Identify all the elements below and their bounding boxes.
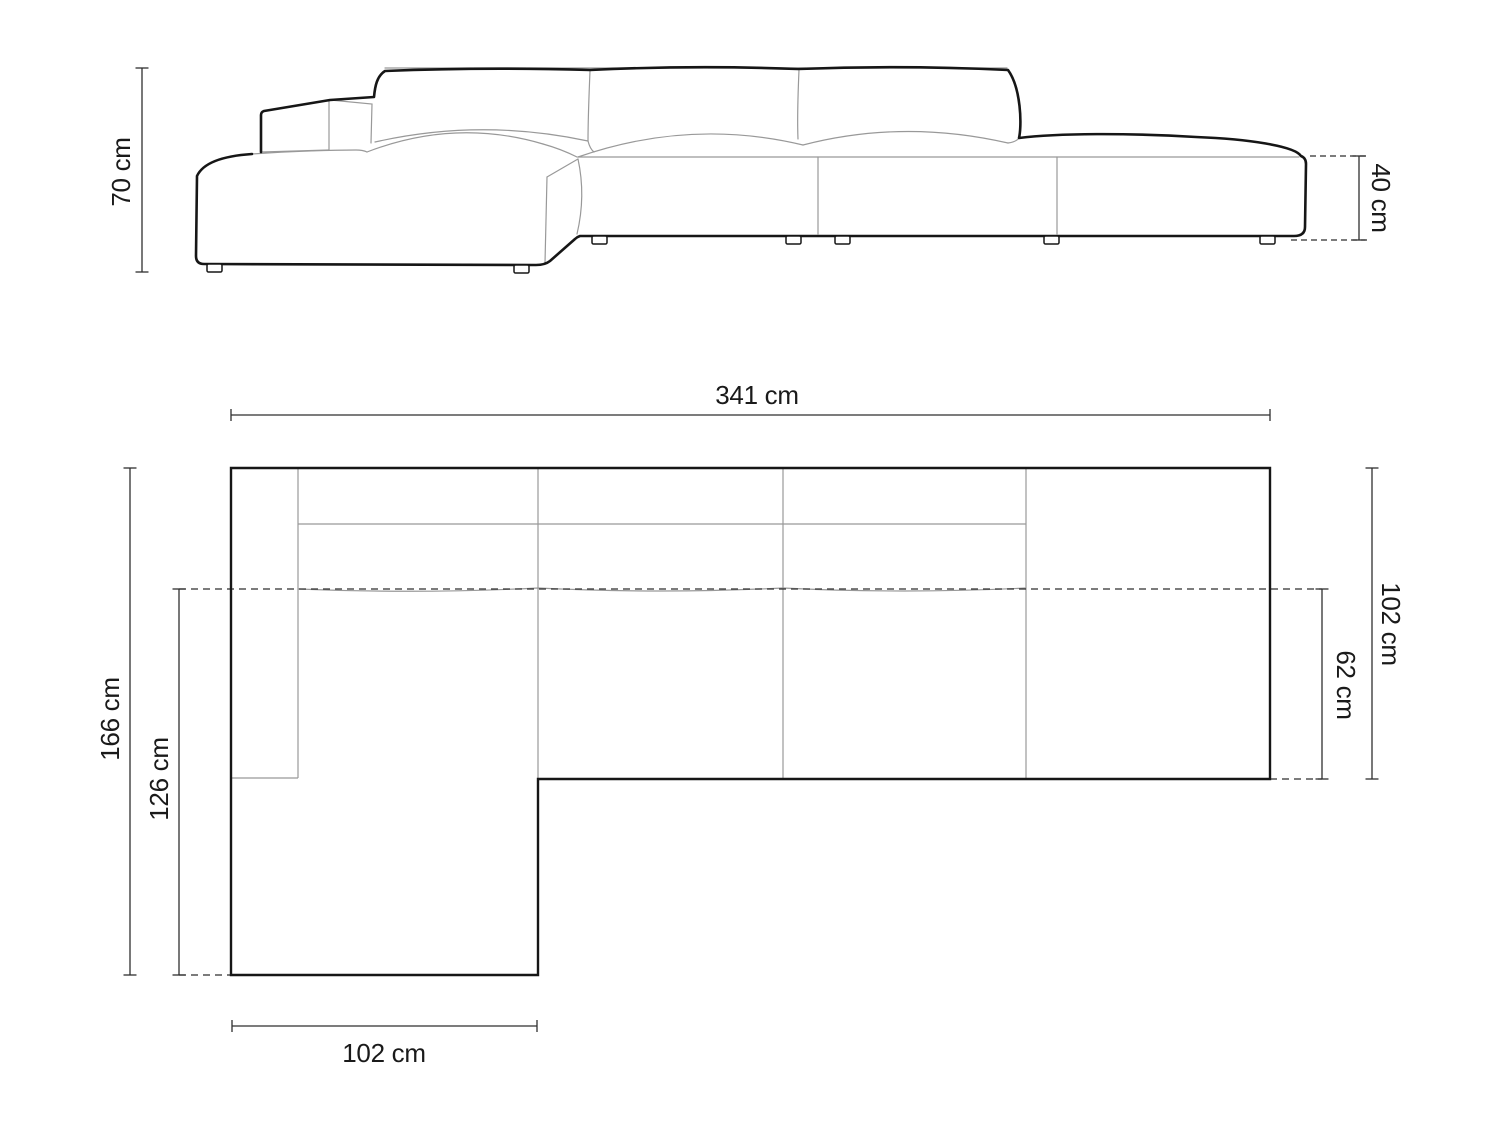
plan-sofa-outline: [231, 468, 1270, 975]
label-body-depth: 102 cm: [1376, 582, 1406, 665]
seat-back-arc-link: [588, 141, 594, 152]
front-interior-lines: [252, 68, 1299, 263]
label-seat-height: 40 cm: [1366, 163, 1396, 232]
top-plan-view: 341 cm 166 cm 126 cm 102 cm 102 cm: [95, 380, 1406, 1068]
backrest-boundary-1: [588, 71, 590, 141]
dimension-seat-depth: [1316, 589, 1329, 779]
leg: [835, 236, 850, 244]
front-elevation-view: 70 cm 40 cm: [106, 67, 1396, 273]
leg: [1044, 236, 1059, 244]
label-total-depth: 166 cm: [95, 677, 125, 760]
leg: [207, 264, 222, 272]
label-chaise-width: 102 cm: [342, 1038, 425, 1068]
dimension-total-height: [136, 68, 149, 272]
front-sofa-outline: [196, 67, 1306, 265]
label-total-width: 341 cm: [715, 380, 798, 410]
main-front-left-curve: [577, 159, 582, 234]
sofa-body-outline: [196, 67, 1306, 265]
dimension-total-width: [231, 409, 1270, 421]
dimension-chaise-width: [232, 1020, 537, 1032]
diagram-svg: 70 cm 40 cm: [0, 0, 1500, 1125]
backrest-boundary-2: [798, 70, 799, 139]
plan-interior-lines: [231, 468, 1026, 779]
chaise-cushion-link: [543, 144, 577, 157]
leg: [514, 265, 529, 273]
plan-outline-group: [231, 468, 1270, 975]
label-chaise-depth: 126 cm: [144, 737, 174, 820]
seat-cushion-arc-2: [578, 134, 803, 157]
chaise-cushion-arc: [367, 133, 543, 152]
dimension-seat-height: [1291, 156, 1368, 240]
leg: [592, 236, 607, 244]
leg: [786, 236, 801, 244]
sofa-dimensions-diagram: 70 cm 40 cm: [0, 0, 1500, 1125]
leg: [1260, 236, 1275, 244]
front-legs: [207, 236, 1275, 273]
armrest-box-inner-edges: [330, 100, 372, 143]
ottoman-cushion-link: [1008, 138, 1019, 143]
plan-dashed-lines: [179, 589, 1322, 975]
dimension-total-depth: [124, 468, 137, 975]
seat-cushion-arc-3: [803, 131, 1008, 145]
dimension-chaise-depth: [173, 589, 186, 975]
label-total-height: 70 cm: [106, 137, 136, 206]
chaise-side-top-edge: [547, 159, 578, 177]
label-seat-depth: 62 cm: [1331, 650, 1361, 719]
chaise-front-right-edge: [545, 177, 547, 263]
